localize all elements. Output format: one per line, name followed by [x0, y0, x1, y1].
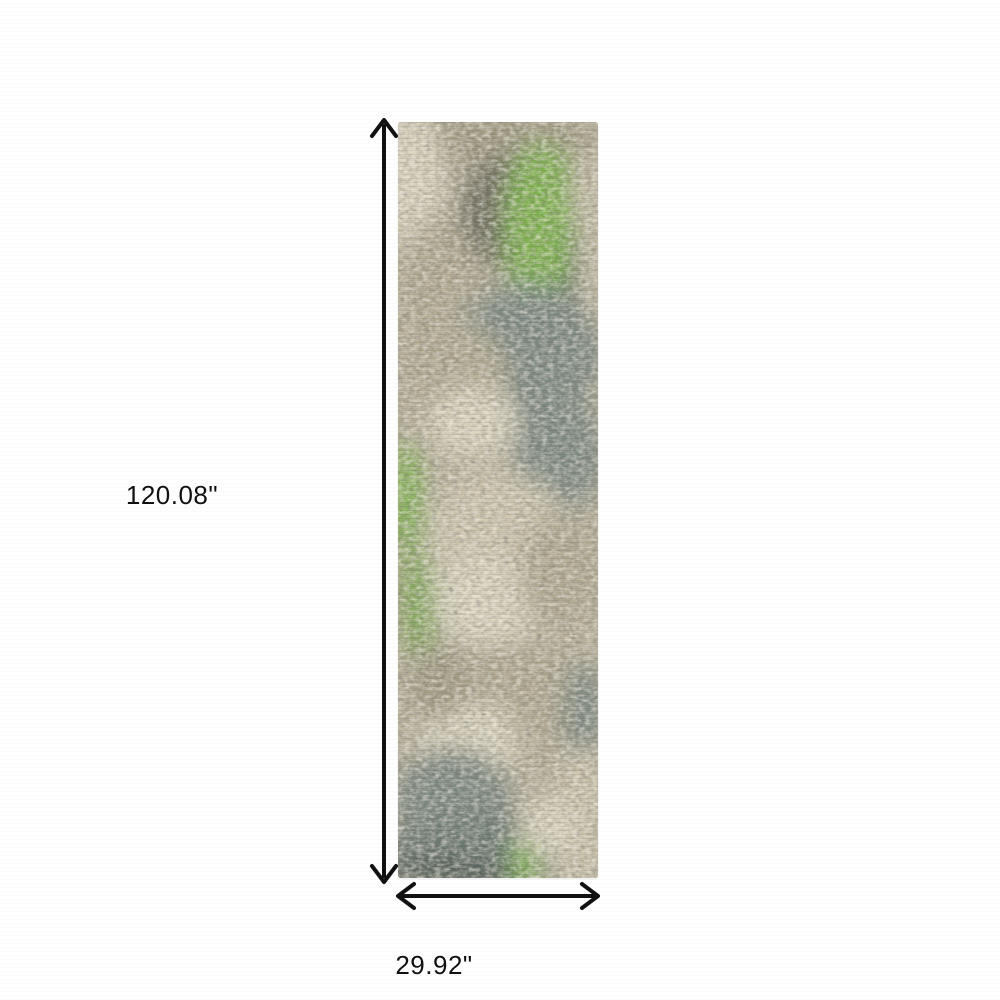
height-dimension-arrow	[372, 120, 396, 882]
rug-product-image	[398, 122, 598, 878]
height-dimension-label: 120.08"	[120, 480, 224, 511]
rug-texture	[398, 122, 598, 878]
width-dimension-arrow	[398, 884, 598, 908]
page-background: 120.08" 29.92"	[0, 0, 1000, 1000]
width-dimension-label: 29.92"	[382, 950, 486, 981]
